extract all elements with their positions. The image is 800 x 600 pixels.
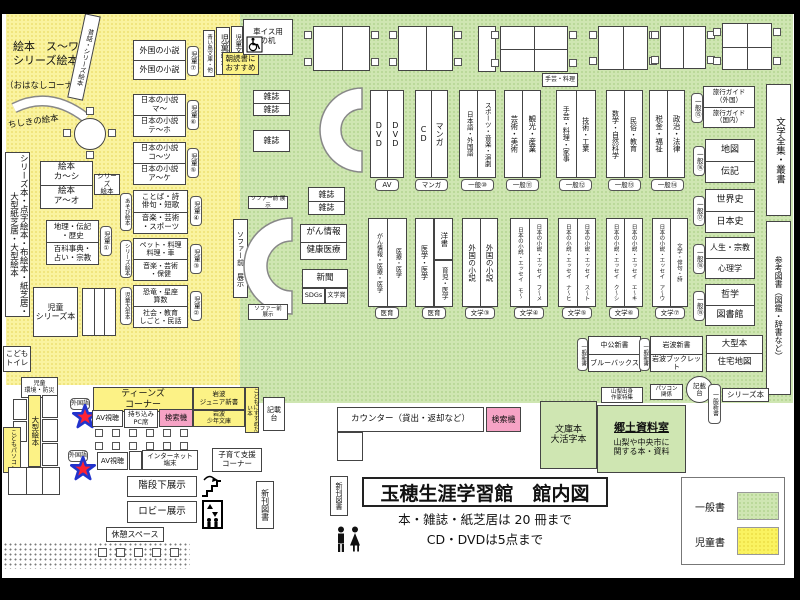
teens-chairs [163, 429, 171, 437]
rest-chairs [116, 548, 125, 557]
art-tourism-shelf-col: 芸術・美術 [505, 91, 522, 177]
reading-table [313, 26, 370, 71]
large-books-shelf-cell: 大型本 [707, 336, 762, 353]
new-books-shelf: 新刊図書 [330, 476, 348, 516]
legend-general-swatch [737, 492, 779, 520]
newspaper-shelf: 新聞 [302, 269, 348, 288]
geography-biography-shelf-cell: 百科事典・ 占い・宗教 [47, 242, 98, 264]
children-jp-novels-ko-shelf-cell: 日本の小説 ア〜ケ [134, 163, 185, 184]
reading-table [598, 26, 648, 70]
magazines-shelf-cell: 雑誌 [254, 103, 289, 116]
chair [491, 59, 499, 67]
tag-ippan-12: 一般⑫ [559, 179, 592, 191]
shelf [13, 399, 27, 420]
jp-novels-essays-shelf-col: 日本の小説・エッセイ フ〜メ [529, 219, 548, 306]
tag-bungaku-4: 文学④ [514, 307, 544, 319]
picturebook-ka-shi-shelf-cell: 絵本 ア〜オ [41, 185, 92, 209]
kids-toilet: こども トイレ [3, 346, 31, 372]
right-border [794, 0, 800, 600]
cancer-health-shelf: がん情報健康医療 [300, 224, 347, 260]
cancer-health-shelf-cell: 健康医療 [301, 242, 346, 260]
history-shelf-cell: 世界史 [706, 190, 754, 211]
local-materials-room-desc: 山梨や中央市に 関する本・資料 [614, 438, 670, 456]
tag-jido-ogata: 児童大型本 [120, 287, 132, 325]
large-picturebooks-shelf: 大型絵本 [28, 395, 41, 467]
foreign-novels-shelf-col: 外国の小説 [463, 219, 480, 306]
magazines-shelf-cell: 雑誌 [254, 91, 289, 103]
magazines-shelf-cell: 雑誌 [309, 201, 344, 215]
teens-chairs [95, 442, 103, 450]
childcare-medical-shelf: 育児・医学 [434, 260, 453, 307]
math-folklore-shelf-col: 民俗・教育 [624, 91, 642, 177]
special-format-picturebooks-shelf: シリーズ本・点字絵本・布絵本・紙芝居・大型紙芝居・大型絵本 [5, 152, 30, 317]
local-materials-room: 郷土資料室山梨や中央市に 関する本・資料 [597, 405, 686, 473]
tax-politics-shelf-col: 政治・法律 [667, 91, 685, 177]
search-terminal-teens: 検索機 [159, 409, 193, 427]
tag-ippan-10: 一般⑩ [461, 179, 494, 191]
magazines-shelf-cell: 雑誌 [309, 188, 344, 201]
craft-cooking-box: 手芸・料理 [542, 73, 578, 87]
lobby-display: ロビー展示 [127, 501, 197, 523]
shelf [42, 419, 58, 442]
shelf [82, 288, 116, 336]
teens-chairs [180, 429, 188, 437]
craft-tech-shelf-col: 技術・工業 [576, 91, 596, 177]
booth [129, 451, 142, 470]
picturebook-ka-shi-shelf-cell: 絵本 カ〜シ [41, 162, 92, 185]
search-terminal-main: 検索機 [486, 407, 521, 432]
math-folklore-shelf: 数学・自然科学民俗・教育 [606, 90, 643, 178]
medical-info-shelf-col: 医療・医学 [387, 219, 406, 306]
wheelchair-icon [246, 36, 263, 53]
counter-leg [337, 432, 363, 461]
children-foreign-novels-shelf: 外国の小説外国の小説 [133, 40, 186, 80]
picturebook-ka-shi-shelf: 絵本 カ〜シ絵本 ア〜オ [40, 161, 93, 209]
writing-desk-teens: 記載 台 [263, 397, 285, 431]
teens-chairs [129, 429, 137, 437]
jp-novels-essays-shelf: 日本の小説・エッセイ モ〜日本の小説・エッセイ フ〜メ [510, 218, 548, 307]
language-performing-arts-shelf-col: スポーツ・音楽・演劇 [477, 91, 495, 177]
yamanashi-authors-box: 山梨出身 作家特集 [601, 387, 643, 403]
rest-chairs [170, 548, 179, 557]
morning-reading-recommend-box: 朝読書に おすすめ [222, 52, 259, 75]
tag-ippan-15: 一般⑮ [691, 93, 703, 123]
tag-ippan-18: 一般⑱ [693, 244, 705, 274]
teens-chairs [146, 429, 154, 437]
chuko-shinsho-shelf: 中公新書ブルーバックス [588, 336, 641, 372]
travel-guide-shelf-cell: 旅行ガイド （外国） [704, 87, 754, 107]
jp-novels-poetry-shelf-col: 文学・俳句・詩 [670, 219, 688, 306]
chair [569, 59, 577, 67]
jp-novels-essays-shelf-col: 日本の小説・エッセイ エ〜キ [624, 219, 642, 306]
av-viewing-booth: AV視聴 [92, 410, 123, 427]
tag-jido-5: 児童⑤ [187, 148, 199, 178]
history-shelf: 世界史日本史 [705, 189, 755, 233]
legend-children-swatch [737, 527, 779, 555]
tag-ippan-shinsho: 一般新書 [639, 338, 650, 371]
sofa-crescent [242, 216, 296, 318]
tag-ippan-shinsho: 一般新書 [708, 384, 721, 424]
children-foreign-novels-shelf-cell: 外国の小説 [134, 41, 185, 60]
dvd-shelf-col: DVD [371, 91, 387, 177]
cd-manga-shelf: CDマンガ [415, 90, 448, 178]
jp-novels-poetry-shelf-col: 日本の小説・エッセイ ア〜ウ [653, 219, 670, 306]
cd-manga-shelf-col: CD [416, 91, 431, 177]
children-hobby-shelf: ペット・料理 料理・車音楽・芸術 ・保健 [133, 238, 188, 281]
bunko-large-print-shelf: 文庫本 大活字本 [540, 401, 597, 469]
chuko-shinsho-shelf-cell: 中公新書 [589, 337, 640, 354]
art-tourism-shelf: 芸術・美術観光・産業 [504, 90, 541, 178]
craft-tech-shelf: 手芸・料理・家事技術・工業 [556, 90, 596, 178]
children-science-shelf-cell: 社会・教育 しごと・民話 [134, 306, 187, 327]
history-shelf-cell: 日本史 [706, 211, 754, 233]
children-language-arts-shelf: ことば・詩 俳句・短歌音楽・芸術 ・スポーツ [133, 190, 188, 234]
magazines-shelf: 雑誌 [253, 130, 290, 152]
chuko-shinsho-shelf-cell: ブルーバックス [589, 354, 640, 372]
philosophy-library-shelf-cell: 図書館 [706, 305, 754, 326]
rest-chairs [134, 548, 143, 557]
chair [86, 151, 94, 159]
reading-table [398, 26, 453, 71]
jp-novels-poetry-shelf: 日本の小説・エッセイ ア〜ウ文学・俳句・詩 [652, 218, 688, 307]
children-jp-novels-ma-shelf-cell: 日本の小説 マ〜 [134, 95, 185, 115]
tag-ippan-14: 一般⑭ [651, 179, 684, 191]
legend: 一般書 児童書 [681, 477, 785, 565]
tag-jido-6: 児童⑥ [187, 100, 199, 130]
chair [713, 28, 721, 36]
teens-chairs [146, 442, 154, 450]
jp-novels-essays-shelf: 日本の小説・エッセイ ク〜シ日本の小説・エッセイ エ〜キ [606, 218, 643, 307]
chair [108, 129, 116, 137]
jp-novels-essays-shelf-col: 日本の小説・エッセイ モ〜 [511, 219, 529, 306]
chair [304, 58, 312, 66]
language-performing-arts-shelf: 日本語・外国語スポーツ・音楽・演劇 [459, 90, 496, 178]
shelf [42, 443, 58, 466]
legend-general-label: 一般書 [695, 499, 725, 514]
dvd-shelf: DVDDVD [370, 90, 404, 178]
stairs-icon [200, 472, 222, 498]
tag-bungaku-3: 文学③ [465, 307, 495, 319]
children-foreign-novels-shelf-cell: 外国の小説 [134, 60, 185, 80]
lending-limit-note: 本・雑誌・紙芝居は 20 冊まで [352, 509, 618, 527]
rest-chairs [152, 548, 161, 557]
iwanami-junior-shinsho-shelf: 岩波 ジュニア新書 [193, 387, 245, 410]
children-hobby-shelf-cell: ペット・料理 料理・車 [134, 239, 187, 259]
series-books-shelf: シリーズ本 [722, 388, 769, 402]
chair [371, 58, 379, 66]
children-jp-novels-ma-shelf-cell: 日本の小説 テ〜ホ [134, 115, 185, 136]
tag-asobi-ehon: あそび絵本 [120, 193, 132, 231]
cd-manga-shelf-col: マンガ [431, 91, 447, 177]
iwanami-shinsho-shelf-cell: 岩波ブックレット [651, 354, 702, 372]
children-science-shelf-cell: 恐竜・星座 算数 [134, 286, 187, 306]
magazines-shelf: 雑誌雑誌 [308, 187, 345, 215]
chair [454, 31, 462, 39]
travel-guide-shelf-cell: 旅行ガイド （国内） [704, 107, 754, 128]
legend-children-label: 児童書 [695, 534, 725, 549]
chair [713, 57, 721, 65]
top-border [0, 0, 800, 14]
reading-table [500, 26, 568, 72]
recommended-for-kids-shelf: こどもにすすめたい本 [245, 387, 259, 433]
chair [589, 31, 597, 39]
tag-bungaku-6: 文学⑥ [609, 307, 639, 319]
sofa-crescent [318, 86, 366, 176]
bench [8, 467, 60, 495]
philosophy-library-shelf: 哲学図書館 [705, 284, 755, 326]
teens-chairs [129, 442, 137, 450]
chair [491, 31, 499, 39]
elevator-icon [202, 500, 223, 529]
chair [304, 31, 312, 39]
sofa-front-display-sign: ソファー前 展示 [248, 196, 288, 209]
tag-ippan-11: 一般⑪ [506, 179, 539, 191]
tag-manga: マンガ [415, 179, 448, 191]
rest-chairs [98, 548, 107, 557]
chair [86, 107, 94, 115]
jp-novels-essays-shelf-col: 日本の小説・エッセイ ス〜ト [577, 219, 596, 306]
literary-prize-shelf: 文学賞 [325, 288, 348, 304]
chair [651, 31, 659, 39]
teens-chairs [112, 429, 120, 437]
tag-ippan-16: 一般⑯ [693, 146, 705, 176]
iwanami-shonen-bunko-shelf: 岩波 少年文庫 [193, 410, 245, 427]
foreign-novels-shelf-col: 外国の小説 [480, 219, 498, 306]
aoitori-bunko-shelf: 青い鳥文庫・他 [203, 30, 215, 77]
tag-iiku: 医育 [375, 307, 399, 319]
tag-jido-1: 児童① [100, 226, 112, 256]
chair [454, 58, 462, 66]
chair [773, 28, 781, 36]
jp-novels-essays-shelf-col: 日本の小説・エッセイ ク〜シ [607, 219, 624, 306]
tag-jido-2: 児童② [190, 291, 202, 321]
tag-ippan-17: 一般⑰ [693, 196, 705, 226]
philosophy-library-shelf-cell: 哲学 [706, 285, 754, 305]
large-books-shelf: 大型本住宅地図 [706, 335, 763, 372]
jp-novels-essays-shelf-col: 日本の小説・エッセイ ナ〜ヒ [559, 219, 577, 306]
geography-biography-shelf-cell: 地理・伝記 ・歴史 [47, 221, 98, 242]
literature-collection-shelf: 文学全集・叢書 [766, 84, 791, 216]
under-stairs-display: 階段下展示 [127, 476, 197, 497]
library-floor-map: 絵本 ス〜ワシリーズ絵本（おはなしコーナー）昔話・シリーズ絵本ちしきの絵本シリー… [0, 0, 800, 600]
children-science-shelf: 恐竜・星座 算数社会・教育 しごと・民話 [133, 285, 188, 328]
tax-politics-shelf-col: 税金・福祉 [650, 91, 667, 177]
life-psychology-shelf-cell: 心理学 [706, 258, 754, 279]
teens-chairs [112, 442, 120, 450]
children-jp-novels-ma-shelf: 日本の小説 マ〜日本の小説 テ〜ホ [133, 94, 186, 137]
byo-pc-seat: 持ち込み PC席 [124, 409, 158, 428]
medical-shelf: 医学・医学 [415, 218, 434, 307]
chair [389, 31, 397, 39]
reading-table [722, 23, 772, 70]
internet-terminal: インターネット 端末 [142, 450, 198, 470]
tag-av: AV [375, 179, 399, 191]
jp-novels-essays-shelf: 日本の小説・エッセイ ナ〜ヒ日本の小説・エッセイ ス〜ト [558, 218, 596, 307]
av-viewing-booth: AV視聴 [97, 452, 128, 470]
children-language-arts-shelf-cell: 音楽・芸術 ・スポーツ [134, 212, 187, 234]
map-title: 玉穂生涯学習館 館内図 [380, 479, 589, 506]
pc-related-box: パソコン 関係 [650, 384, 683, 400]
new-books-shelf: 新刊図書 [256, 481, 274, 529]
language-performing-arts-shelf-col: 日本語・外国語 [460, 91, 477, 177]
teens-chairs [95, 429, 103, 437]
life-psychology-shelf-cell: 人生・宗教 [706, 238, 754, 258]
children-jp-novels-ko-shelf: 日本の小説 コ〜ツ日本の小説 ア〜ケ [133, 142, 186, 185]
iwanami-shinsho-shelf: 岩波新書岩波ブックレット [650, 336, 703, 372]
chair [651, 56, 659, 64]
tag-jido-7: 児童⑦ [187, 46, 199, 76]
chair [589, 57, 597, 65]
children-series-shelf: 児童 シリーズ本 [33, 287, 78, 337]
large-books-shelf-cell: 住宅地図 [707, 353, 762, 371]
tag-ippan-19: 一般⑲ [693, 291, 705, 321]
chair [371, 31, 379, 39]
tag-ippan-13: 一般⑬ [608, 179, 641, 191]
rest-space-label: 休憩スペース [106, 527, 164, 542]
travel-guide-shelf: 旅行ガイド （外国）旅行ガイド （国内） [703, 86, 755, 128]
rest-area [3, 542, 190, 569]
craft-tech-shelf-col: 手芸・料理・家事 [557, 91, 576, 177]
counter: カウンター（貸出・返却など） [337, 407, 484, 432]
media-limit-note: CD・DVDは5点まで [352, 529, 618, 547]
sofa-front-display-sign: ソファー前 展示 [248, 304, 288, 320]
star-marker [70, 456, 96, 482]
children-hobby-shelf-cell: 音楽・芸術 ・保健 [134, 259, 187, 280]
teens-chairs [180, 442, 188, 450]
map-biography-shelf-cell: 地図 [706, 140, 754, 161]
round-table [74, 118, 106, 150]
teens-chairs [163, 442, 171, 450]
foreign-novels-shelf: 外国の小説外国の小説 [462, 218, 498, 307]
tag-jido-4: 児童④ [190, 196, 202, 226]
childcare-support-corner: 子育て支援 コーナー [212, 448, 262, 472]
local-materials-room-title: 郷土資料室 [614, 422, 669, 435]
western-books-shelf: 洋書 [434, 218, 453, 260]
map-biography-shelf: 地図伝記 [705, 139, 755, 183]
tax-politics-shelf: 税金・福祉政治・法律 [649, 90, 685, 178]
tag-iiku: 医育 [422, 307, 446, 319]
medical-info-shelf-col: がん情報・医療・医学 [369, 219, 387, 306]
tag-ippan-shinsho: 一般新書 [577, 338, 588, 371]
reference-books-shelf: 参考図書（図鑑・辞書など） [766, 221, 791, 395]
map-title-box: 玉穂生涯学習館 館内図 [362, 477, 608, 507]
chair [773, 57, 781, 65]
bottom-border [0, 578, 800, 600]
math-folklore-shelf-col: 数学・自然科学 [607, 91, 624, 177]
magazines-shelf: 雑誌雑誌 [253, 90, 290, 116]
children-jp-novels-ko-shelf-cell: 日本の小説 コ〜ツ [134, 143, 185, 163]
tag-series-ehon: シリーズ絵本 [120, 240, 132, 278]
chair [389, 58, 397, 66]
tag-bungaku-5: 文学⑤ [562, 307, 592, 319]
map-biography-shelf-cell: 伝記 [706, 161, 754, 183]
chair [569, 31, 577, 39]
life-psychology-shelf: 人生・宗教心理学 [705, 237, 755, 279]
tag-bungaku-7: 文学⑦ [655, 307, 685, 319]
series-picturebook-tag: シリーズ 絵本 [94, 174, 120, 195]
geography-biography-shelf: 地理・伝記 ・歴史百科事典・ 占い・宗教 [46, 220, 99, 265]
cancer-health-shelf-cell: がん情報 [301, 225, 346, 242]
shelf [42, 395, 58, 418]
dvd-shelf-col: DVD [387, 91, 404, 177]
art-tourism-shelf-col: 観光・産業 [522, 91, 540, 177]
iwanami-shinsho-shelf-cell: 岩波新書 [651, 337, 702, 354]
children-language-arts-shelf-cell: ことば・詩 俳句・短歌 [134, 191, 187, 212]
chair [63, 129, 71, 137]
medical-info-shelf: がん情報・医療・医学医療・医学 [368, 218, 407, 307]
tag-jido-3: 児童③ [190, 244, 202, 274]
sdgs-shelf: SDGs [302, 288, 325, 304]
reading-table [660, 26, 706, 69]
left-border [0, 0, 2, 600]
